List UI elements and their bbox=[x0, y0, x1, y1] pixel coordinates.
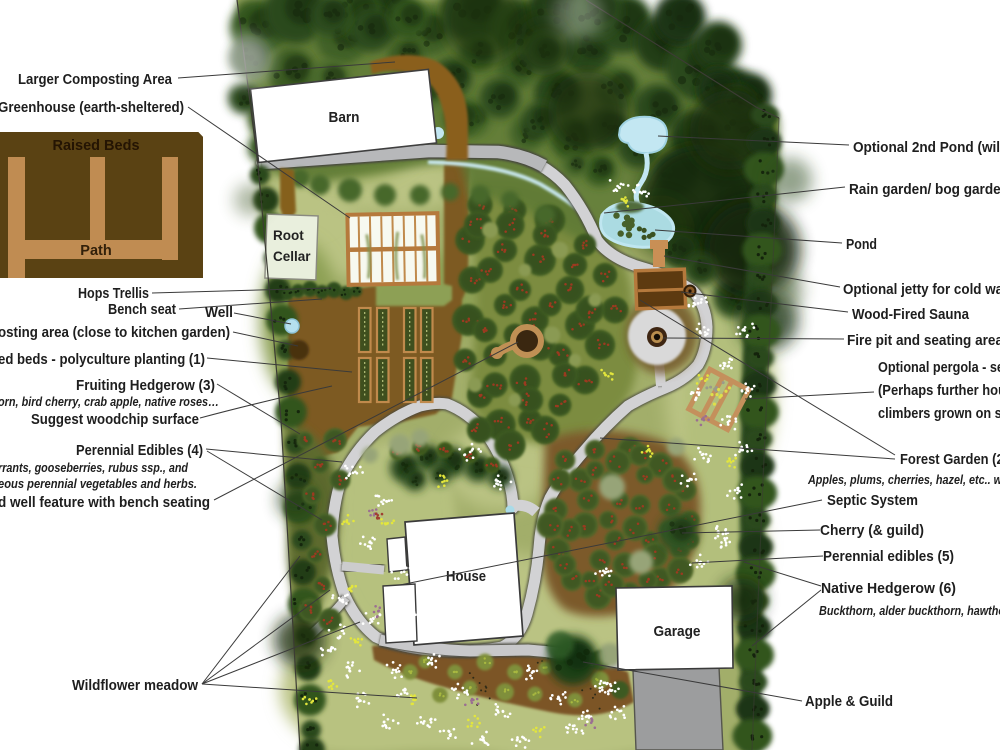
svg-text:Optional pergola - sea: Optional pergola - sea bbox=[878, 360, 1000, 376]
svg-text:House: House bbox=[446, 568, 486, 585]
svg-text:climbers grown on st: climbers grown on st bbox=[878, 406, 1000, 422]
svg-text:Larger Composting Area: Larger Composting Area bbox=[18, 72, 173, 88]
svg-text:Optional 2nd Pond (wildlife: Optional 2nd Pond (wildlife bbox=[853, 140, 1000, 156]
svg-text:Greenhouse (earth-sheltered): Greenhouse (earth-sheltered) bbox=[0, 100, 184, 116]
svg-text:Apples, plums, cherries, hazel: Apples, plums, cherries, hazel, etc.. wi bbox=[807, 473, 1000, 487]
svg-text:Septic System: Septic System bbox=[827, 493, 918, 509]
svg-text:orn, bird cherry, crab apple,: orn, bird cherry, crab apple, native ros… bbox=[0, 395, 219, 409]
svg-text:Pond: Pond bbox=[846, 237, 877, 253]
svg-text:Hops Trellis: Hops Trellis bbox=[78, 286, 149, 302]
svg-text:Optional jetty for cold wate: Optional jetty for cold wate bbox=[843, 282, 1000, 298]
svg-text:Root: Root bbox=[273, 228, 304, 243]
svg-text:Path: Path bbox=[80, 243, 111, 259]
svg-text:Buckthorn, alder buckthorn, ha: Buckthorn, alder buckthorn, hawtho bbox=[819, 604, 1000, 618]
svg-text:Raised Beds: Raised Beds bbox=[52, 138, 139, 154]
svg-text:rrants, gooseberries, rubus ss: rrants, gooseberries, rubus ssp., and bbox=[0, 461, 188, 475]
svg-text:(Perhaps further hou: (Perhaps further hou bbox=[878, 383, 1000, 399]
svg-text:ed beds - polyculture planting: ed beds - polyculture planting (1) bbox=[0, 352, 205, 368]
svg-text:Native Hedgerow (6): Native Hedgerow (6) bbox=[821, 581, 956, 597]
svg-text:Well: Well bbox=[205, 305, 233, 321]
svg-text:Suggest woodchip surface: Suggest woodchip surface bbox=[31, 412, 199, 428]
svg-text:Cherry (& guild): Cherry (& guild) bbox=[820, 523, 924, 539]
svg-text:Fruiting Hedgerow (3): Fruiting Hedgerow (3) bbox=[76, 378, 215, 394]
svg-text:Fire pit and seating area: Fire pit and seating area bbox=[847, 333, 1000, 349]
svg-text:Perennial Edibles (4): Perennial Edibles (4) bbox=[76, 443, 203, 459]
svg-text:Garage: Garage bbox=[654, 623, 701, 640]
svg-text:Wood-Fired Sauna: Wood-Fired Sauna bbox=[852, 307, 970, 323]
svg-text:Rain garden/ bog garden: Rain garden/ bog garden bbox=[849, 182, 1000, 198]
svg-text:osting area (close to kitchen: osting area (close to kitchen garden) bbox=[0, 325, 230, 341]
svg-text:Bench seat: Bench seat bbox=[108, 302, 176, 318]
svg-text:eous perennial vegetables and: eous perennial vegetables and herbs. bbox=[0, 477, 197, 491]
svg-text:Apple & Guild: Apple & Guild bbox=[805, 694, 893, 710]
svg-text:Perennial edibles (5): Perennial edibles (5) bbox=[823, 549, 954, 565]
svg-text:Wildflower meadow: Wildflower meadow bbox=[72, 678, 199, 694]
svg-text:Barn: Barn bbox=[329, 109, 360, 126]
svg-text:Forest Garden (2): Forest Garden (2) bbox=[900, 452, 1000, 468]
svg-text:Cellar: Cellar bbox=[273, 249, 311, 264]
svg-text:d well feature with bench seat: d well feature with bench seating bbox=[0, 495, 210, 511]
